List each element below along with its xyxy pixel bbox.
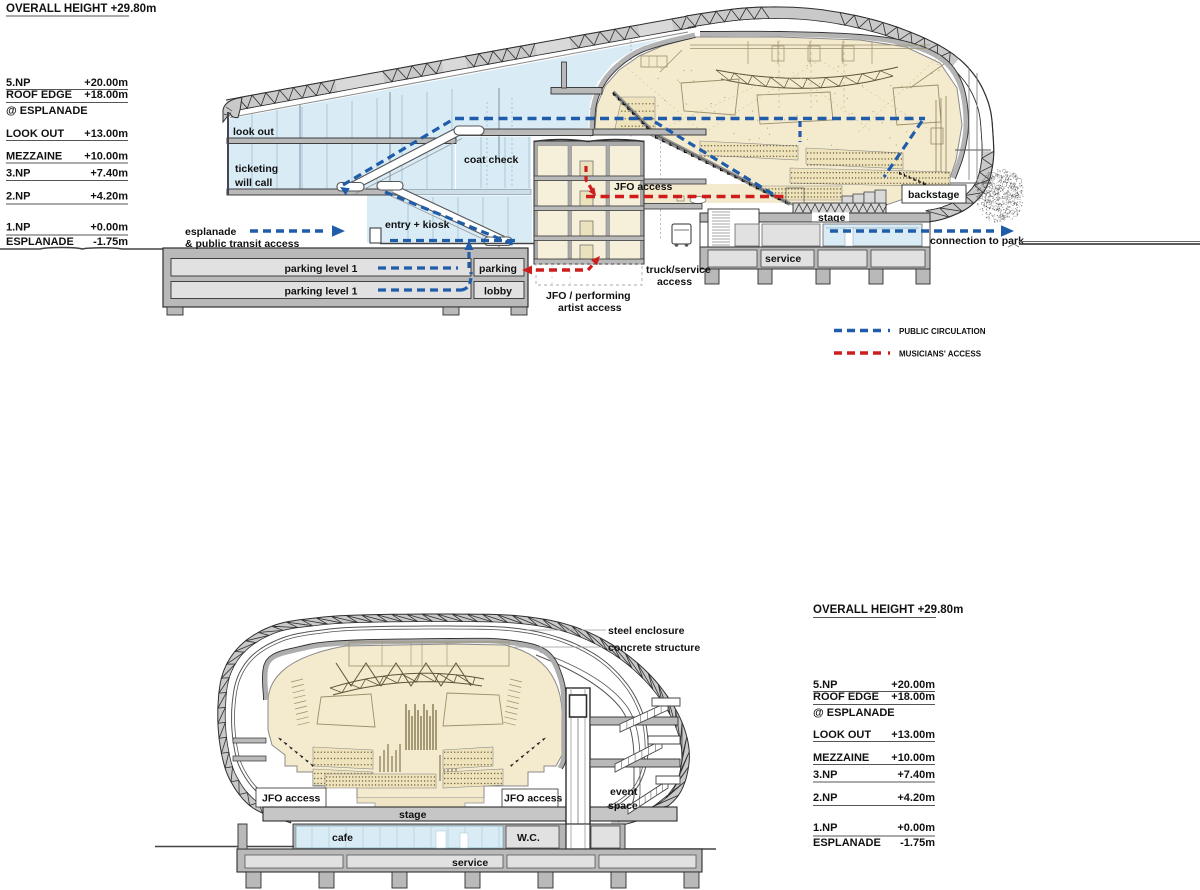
svg-text:look out: look out: [233, 126, 274, 138]
svg-text:ROOF EDGE: ROOF EDGE: [6, 89, 72, 101]
svg-text:@ ESPLANADE: @ ESPLANADE: [6, 105, 88, 117]
svg-text:+13.00m: +13.00m: [84, 128, 128, 140]
svg-text:W.C.: W.C.: [517, 832, 540, 844]
svg-text:PUBLIC CIRCULATION: PUBLIC CIRCULATION: [899, 327, 986, 336]
svg-text:JFO / performing: JFO / performing: [546, 290, 631, 302]
svg-text:OVERALL HEIGHT +29.80m: OVERALL HEIGHT +29.80m: [813, 604, 963, 616]
svg-text:+4.20m: +4.20m: [897, 792, 935, 804]
svg-text:5.NP: 5.NP: [6, 77, 30, 89]
svg-text:esplanade: esplanade: [185, 226, 237, 238]
svg-text:MUSICIANS' ACCESS: MUSICIANS' ACCESS: [899, 350, 982, 359]
svg-text:lobby: lobby: [484, 286, 512, 298]
svg-text:ESPLANADE: ESPLANADE: [6, 236, 74, 248]
svg-text:+7.40m: +7.40m: [90, 168, 128, 180]
svg-text:parking: parking: [479, 263, 517, 275]
svg-text:event: event: [610, 786, 638, 798]
svg-text:@ ESPLANADE: @ ESPLANADE: [813, 707, 895, 719]
svg-text:1.NP: 1.NP: [813, 822, 837, 834]
svg-text:coat check: coat check: [464, 154, 518, 166]
svg-text:1.NP: 1.NP: [6, 222, 30, 234]
svg-text:access: access: [657, 276, 692, 288]
svg-text:+7.40m: +7.40m: [897, 769, 935, 781]
svg-text:entry + kiosk: entry + kiosk: [385, 219, 450, 231]
svg-text:artist access: artist access: [558, 302, 622, 314]
svg-text:service: service: [452, 857, 488, 869]
svg-text:+18.00m: +18.00m: [891, 691, 935, 703]
svg-text:+10.00m: +10.00m: [84, 151, 128, 163]
svg-text:+13.00m: +13.00m: [891, 729, 935, 741]
svg-text:+0.00m: +0.00m: [897, 822, 935, 834]
svg-text:+20.00m: +20.00m: [891, 679, 935, 691]
svg-text:concrete structure: concrete structure: [608, 642, 700, 654]
svg-text:2.NP: 2.NP: [6, 191, 30, 203]
svg-text:+20.00m: +20.00m: [84, 77, 128, 89]
svg-text:steel enclosure: steel enclosure: [608, 625, 685, 637]
svg-text:parking level 1: parking level 1: [285, 263, 358, 275]
svg-text:ROOF EDGE: ROOF EDGE: [813, 691, 879, 703]
svg-text:service: service: [765, 253, 801, 265]
svg-text:+10.00m: +10.00m: [891, 752, 935, 764]
svg-text:+18.00m: +18.00m: [84, 89, 128, 101]
svg-text:JFO access: JFO access: [614, 181, 673, 193]
svg-text:-1.75m: -1.75m: [93, 236, 128, 248]
svg-text:3.NP: 3.NP: [6, 168, 30, 180]
svg-text:ESPLANADE: ESPLANADE: [813, 837, 881, 849]
svg-text:cafe: cafe: [332, 832, 353, 844]
svg-text:MEZZAINE: MEZZAINE: [813, 752, 869, 764]
svg-text:2.NP: 2.NP: [813, 792, 837, 804]
svg-text:OVERALL HEIGHT +29.80m: OVERALL HEIGHT +29.80m: [6, 3, 156, 15]
svg-text:connection to park: connection to park: [930, 235, 1024, 247]
svg-text:-1.75m: -1.75m: [900, 837, 935, 849]
svg-text:JFO access: JFO access: [504, 793, 563, 805]
svg-text:+0.00m: +0.00m: [90, 222, 128, 234]
svg-text:5.NP: 5.NP: [813, 679, 837, 691]
svg-text:stage: stage: [399, 809, 427, 821]
svg-text:LOOK OUT: LOOK OUT: [813, 729, 871, 741]
svg-text:& public transit access: & public transit access: [185, 238, 300, 250]
svg-text:space: space: [608, 800, 638, 812]
svg-text:will call: will call: [234, 177, 272, 189]
svg-text:JFO access: JFO access: [262, 793, 321, 805]
svg-text:truck/service: truck/service: [646, 264, 711, 276]
svg-text:MEZZAINE: MEZZAINE: [6, 151, 62, 163]
svg-text:LOOK OUT: LOOK OUT: [6, 128, 64, 140]
svg-text:backstage: backstage: [908, 189, 960, 201]
svg-text:ticketing: ticketing: [235, 163, 278, 175]
svg-text:parking level 1: parking level 1: [285, 286, 358, 298]
svg-text:3.NP: 3.NP: [813, 769, 837, 781]
svg-text:+4.20m: +4.20m: [90, 191, 128, 203]
